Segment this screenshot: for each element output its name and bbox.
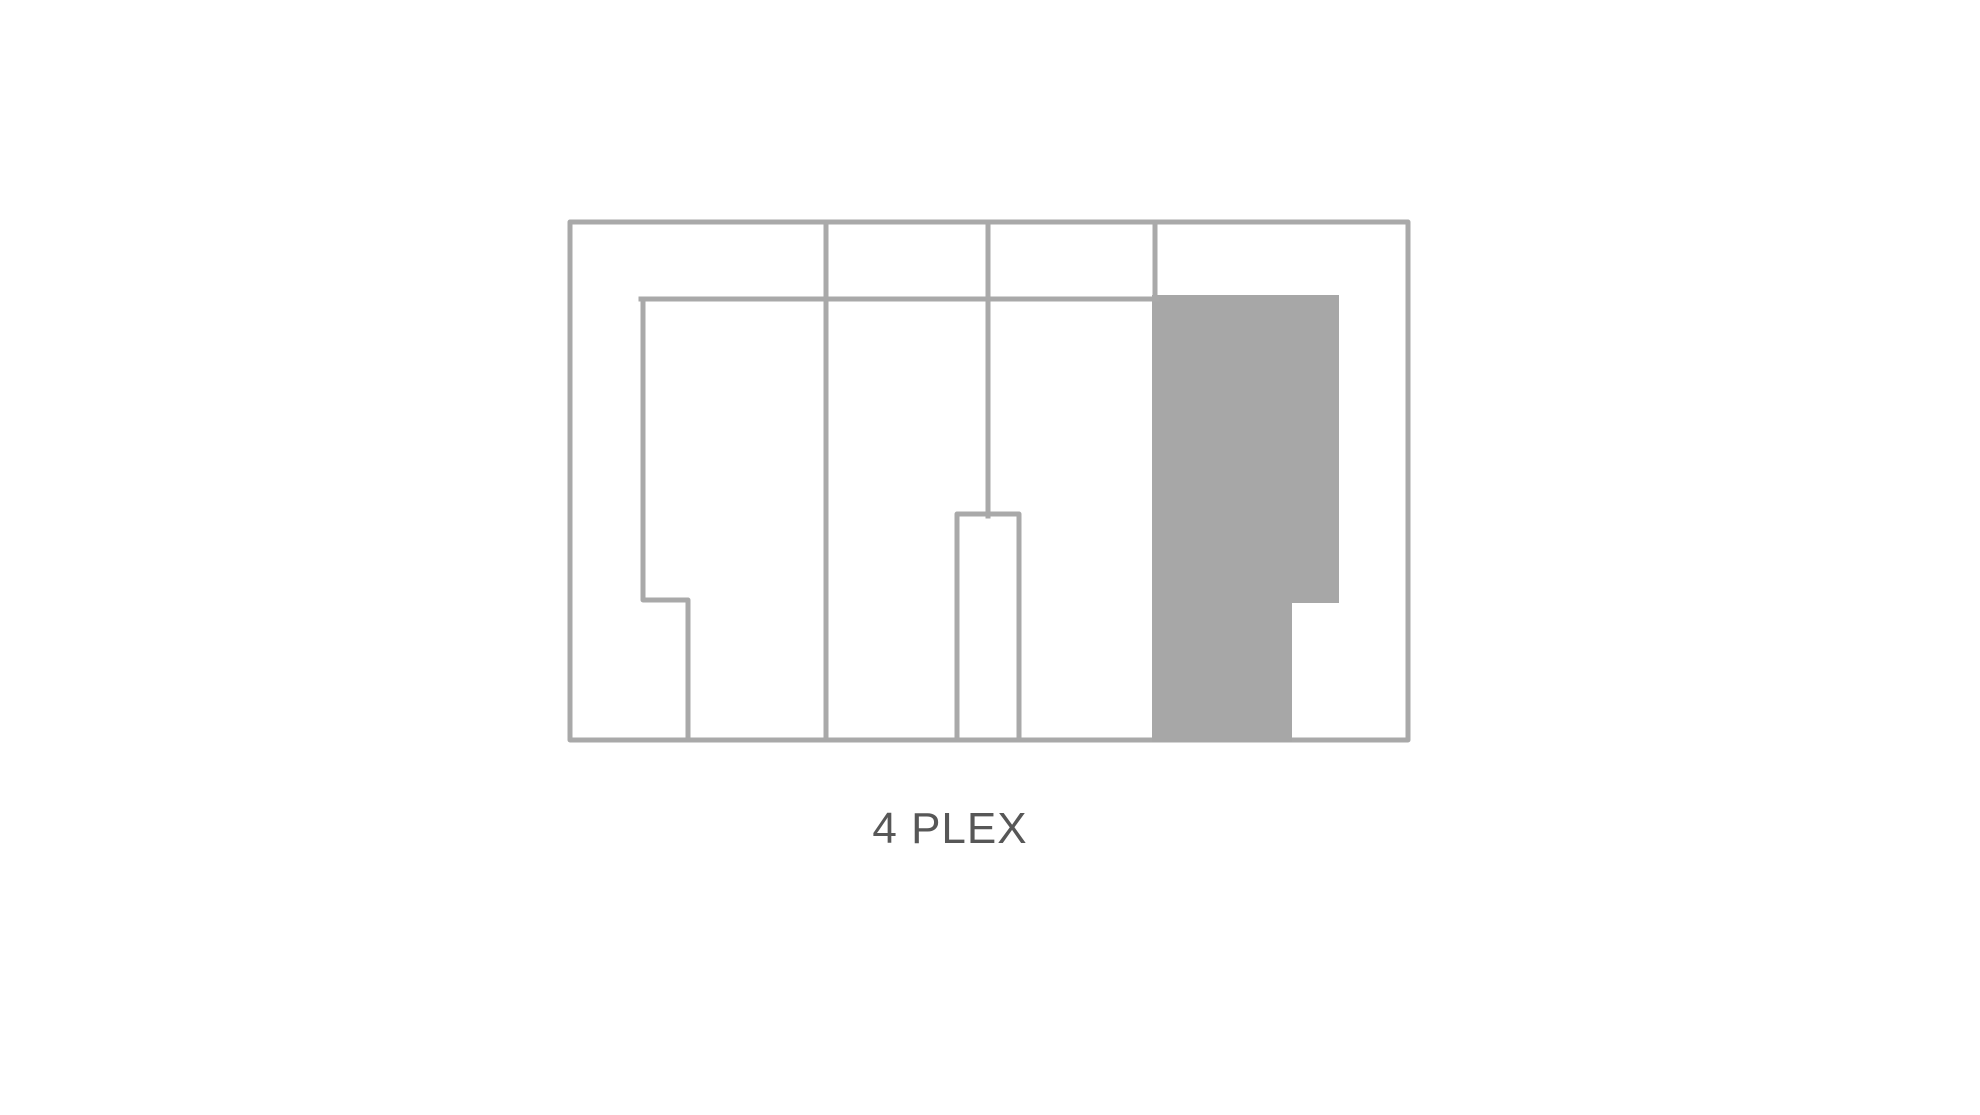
unit1-inner-wall (643, 299, 688, 740)
center-shaft-wall (957, 514, 1019, 740)
floorplan-canvas: 4 PLEX (0, 0, 1980, 1115)
diagram-title: 4 PLEX (872, 804, 1027, 854)
floorplan-drawing (0, 0, 1980, 1115)
shaded-unit (1152, 295, 1339, 742)
